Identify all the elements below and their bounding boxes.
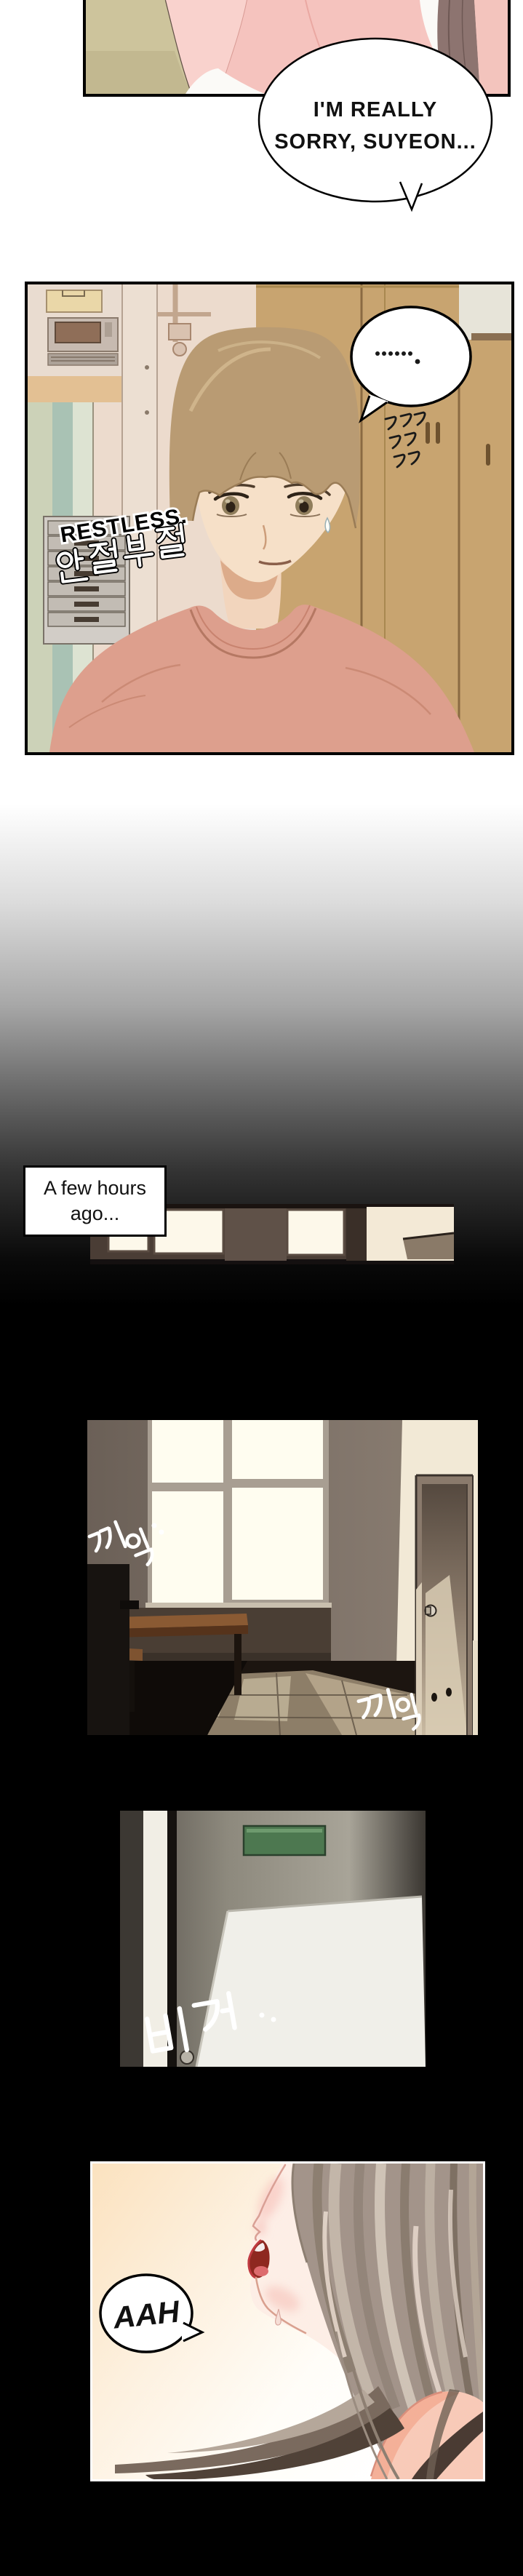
- svg-text:I'M REALLY: I'M REALLY: [314, 98, 438, 121]
- svg-text:SORRY, SUYEON...: SORRY, SUYEON...: [274, 130, 476, 153]
- svg-text:AAH: AAH: [111, 2294, 182, 2335]
